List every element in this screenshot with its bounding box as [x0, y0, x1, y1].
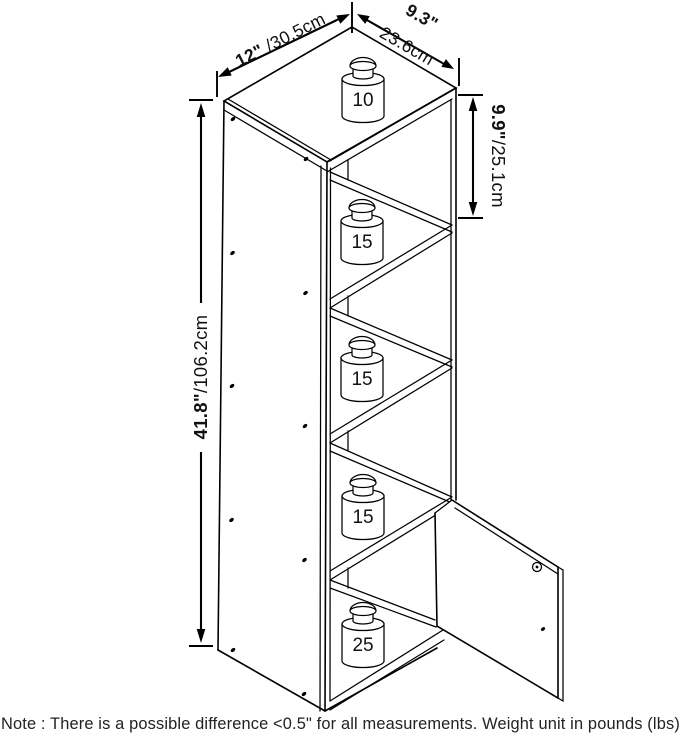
- dim-total-height-inch: 41.8": [190, 393, 211, 439]
- door-open: [435, 500, 563, 701]
- dimension-opening-height: 9.9"/25.1cm: [458, 95, 509, 218]
- weight-shelf3-label: 15: [352, 507, 373, 528]
- dim-depth-inch-label: 9.3": [402, 0, 441, 34]
- dimension-total-height: 41.8"/106.2cm: [189, 100, 213, 646]
- dim-total-height-label: 41.8"/106.2cm: [190, 315, 211, 440]
- dim-opening-height-metric: /25.1cm: [488, 140, 509, 208]
- weight-shelf2-label: 15: [351, 369, 372, 390]
- weight-bottom-label: 25: [352, 635, 373, 656]
- product-dimension-diagram: 10 15 15 15 25: [0, 0, 679, 744]
- cabinet-body: [218, 27, 456, 711]
- weight-top-label: 10: [352, 90, 373, 111]
- bookcase-line-drawing: 10 15 15 15 25: [0, 0, 679, 744]
- dim-total-height-metric: /106.2cm: [190, 315, 211, 394]
- dim-opening-height-label: 9.9"/25.1cm: [488, 104, 509, 208]
- measurement-note: Note : There is a possible difference <0…: [1, 715, 679, 733]
- weight-shelf1-label: 15: [351, 232, 372, 253]
- dim-opening-height-inch: 9.9": [488, 104, 509, 140]
